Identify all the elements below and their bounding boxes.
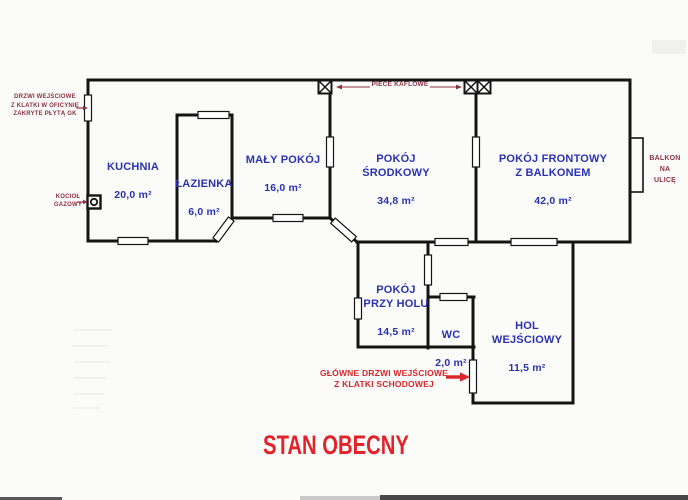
stoves-arrow-right-icon [430, 85, 462, 90]
room-area: 42,0 m² [499, 194, 607, 208]
small-room-side-door-marker [327, 137, 334, 167]
hall-room-window-marker [355, 298, 362, 319]
front-room-hall-door-marker [511, 239, 557, 246]
middle-room-hall-door-marker [435, 239, 468, 246]
small-room-bottom-door-marker [273, 215, 303, 222]
annotation-tiled-stoves: PIECE KAFLOWE [372, 81, 429, 90]
room-label-pokoj-srodkowy: POKÓJ ŚRODKOWY 34,8 m² [362, 138, 430, 222]
room-name: ŁAZIENKA [175, 177, 232, 191]
door-window-markers [85, 95, 558, 393]
room-label-maly-pokoj: MAŁY POKÓJ 16,0 m² [246, 139, 321, 209]
room-label-pokoj-przy-holu: POKÓJ PRZY HOLU 14,5 m² [363, 269, 428, 353]
tiled-stove-icon [319, 81, 332, 94]
room-name: HOL WEJŚCIOWY [492, 319, 562, 347]
tiled-stove-icon [478, 81, 491, 94]
scan-smudge [652, 40, 686, 54]
corner-diagonal-door-marker [331, 218, 357, 242]
floor-plan-scan: KUCHNIA 20,0 m² ŁAZIENKA 6,0 m² MAŁY POK… [0, 0, 688, 500]
room-name: POKÓJ FRONTOWY Z BALKONEM [499, 152, 607, 180]
room-area: 11,5 m² [492, 361, 562, 375]
bathroom-door-marker [198, 112, 229, 119]
balcony-outline [630, 138, 643, 192]
room-label-pokoj-frontowy: POKÓJ FRONTOWY Z BALKONEM 42,0 m² [499, 138, 607, 222]
room-name: POKÓJ PRZY HOLU [363, 283, 428, 311]
room-name: POKÓJ ŚRODKOWY [362, 152, 430, 180]
tiled-stove-icon [465, 81, 478, 94]
room-name: MAŁY POKÓJ [246, 153, 321, 167]
room-area: 16,0 m² [246, 181, 321, 195]
gas-boiler-icon [88, 196, 101, 209]
room-label-lazienka: ŁAZIENKA 6,0 m² [175, 163, 232, 233]
room-area: 20,0 m² [107, 188, 159, 202]
annotation-gas-boiler: KOCIOŁ GAZOWY [52, 194, 84, 209]
main-entrance-door-marker [470, 360, 477, 393]
page-title: STAN OBECNY [263, 431, 409, 459]
room-area: 14,5 m² [363, 325, 428, 339]
annotation-balcony: BALKON NA ULICĘ [649, 153, 680, 186]
scan-edge-band [0, 495, 688, 500]
scan-artifacts [72, 330, 112, 408]
middle-front-room-door-marker [473, 137, 480, 167]
annotation-covered-entrance: DRZWI WEJŚCIOWE Z KLATKI W OFICYNIE ZAKR… [8, 93, 82, 119]
room-area: 6,0 m² [175, 205, 232, 219]
kitchen-window-marker [118, 238, 148, 245]
stoves-arrow-left-icon [336, 85, 370, 90]
floor-plan-drawing [0, 0, 688, 500]
room-label-kuchnia: KUCHNIA 20,0 m² [107, 146, 159, 216]
annotation-main-entrance: GŁÓWNE DRZWI WEJŚCIOWE Z KLATKI SCHODOWE… [320, 368, 448, 389]
room-area: 34,8 m² [362, 194, 430, 208]
wc-door-marker [440, 294, 467, 301]
room-name: KUCHNIA [107, 160, 159, 174]
room-label-hol-wejsciowy: HOL WEJŚCIOWY 11,5 m² [492, 305, 562, 389]
room-name: WC [435, 328, 467, 342]
